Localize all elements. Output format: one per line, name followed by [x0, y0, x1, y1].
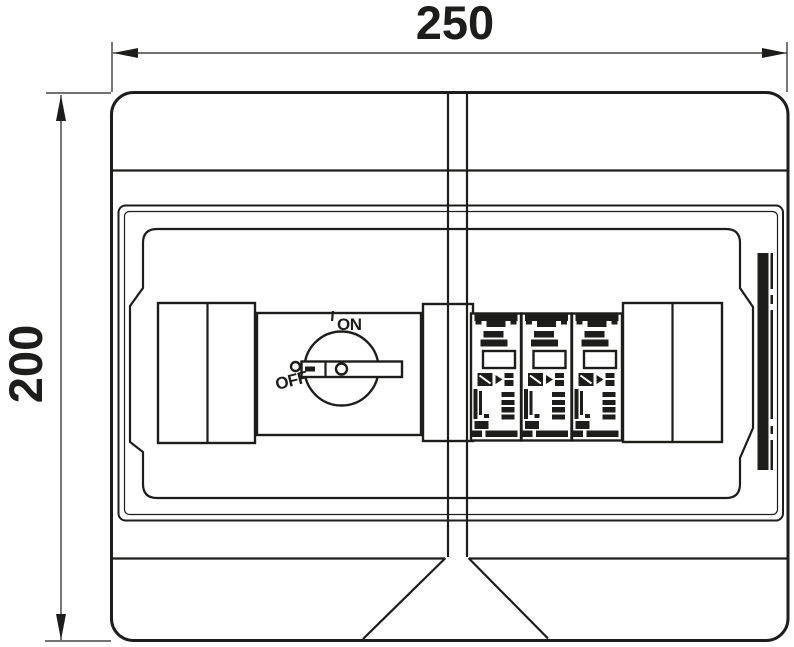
din-rail-row: ON OFF [158, 303, 722, 443]
right-end-bracket [623, 303, 722, 442]
hinge-notch-strip [771, 426, 774, 434]
funnel-diagonal-left [363, 558, 446, 639]
height-dimension-label: 200 [0, 325, 52, 403]
arrowhead-right-icon [762, 48, 787, 58]
spd-module-1 [471, 314, 521, 441]
width-dimension: 250 [112, 0, 787, 92]
hinge-rail [758, 253, 774, 470]
height-dimension: 200 [0, 93, 111, 641]
spd-module-2 [522, 314, 572, 441]
arrowhead-up-icon [56, 95, 66, 121]
rotary-switch-module: ON OFF [257, 311, 421, 435]
on-label: ON [337, 315, 362, 334]
left-end-bracket [158, 303, 255, 443]
hinge-notch-strip [771, 253, 774, 289]
width-dimension-label: 250 [416, 0, 494, 49]
hinge-notch-strip [771, 310, 774, 419]
on-position-tick [332, 311, 333, 321]
hinge-notch-strip [771, 440, 774, 470]
technical-drawing: 250 200 [0, 0, 794, 647]
funnel-diagonal-right [469, 558, 549, 639]
hinge-bar [758, 253, 769, 470]
hinge-notch-strip [771, 295, 774, 304]
spd-module-3 [572, 314, 622, 441]
switch-handle [302, 362, 403, 378]
arrowhead-down-icon [56, 614, 66, 640]
drawing-canvas: 250 200 [0, 0, 794, 647]
arrowhead-left-icon [113, 48, 138, 58]
